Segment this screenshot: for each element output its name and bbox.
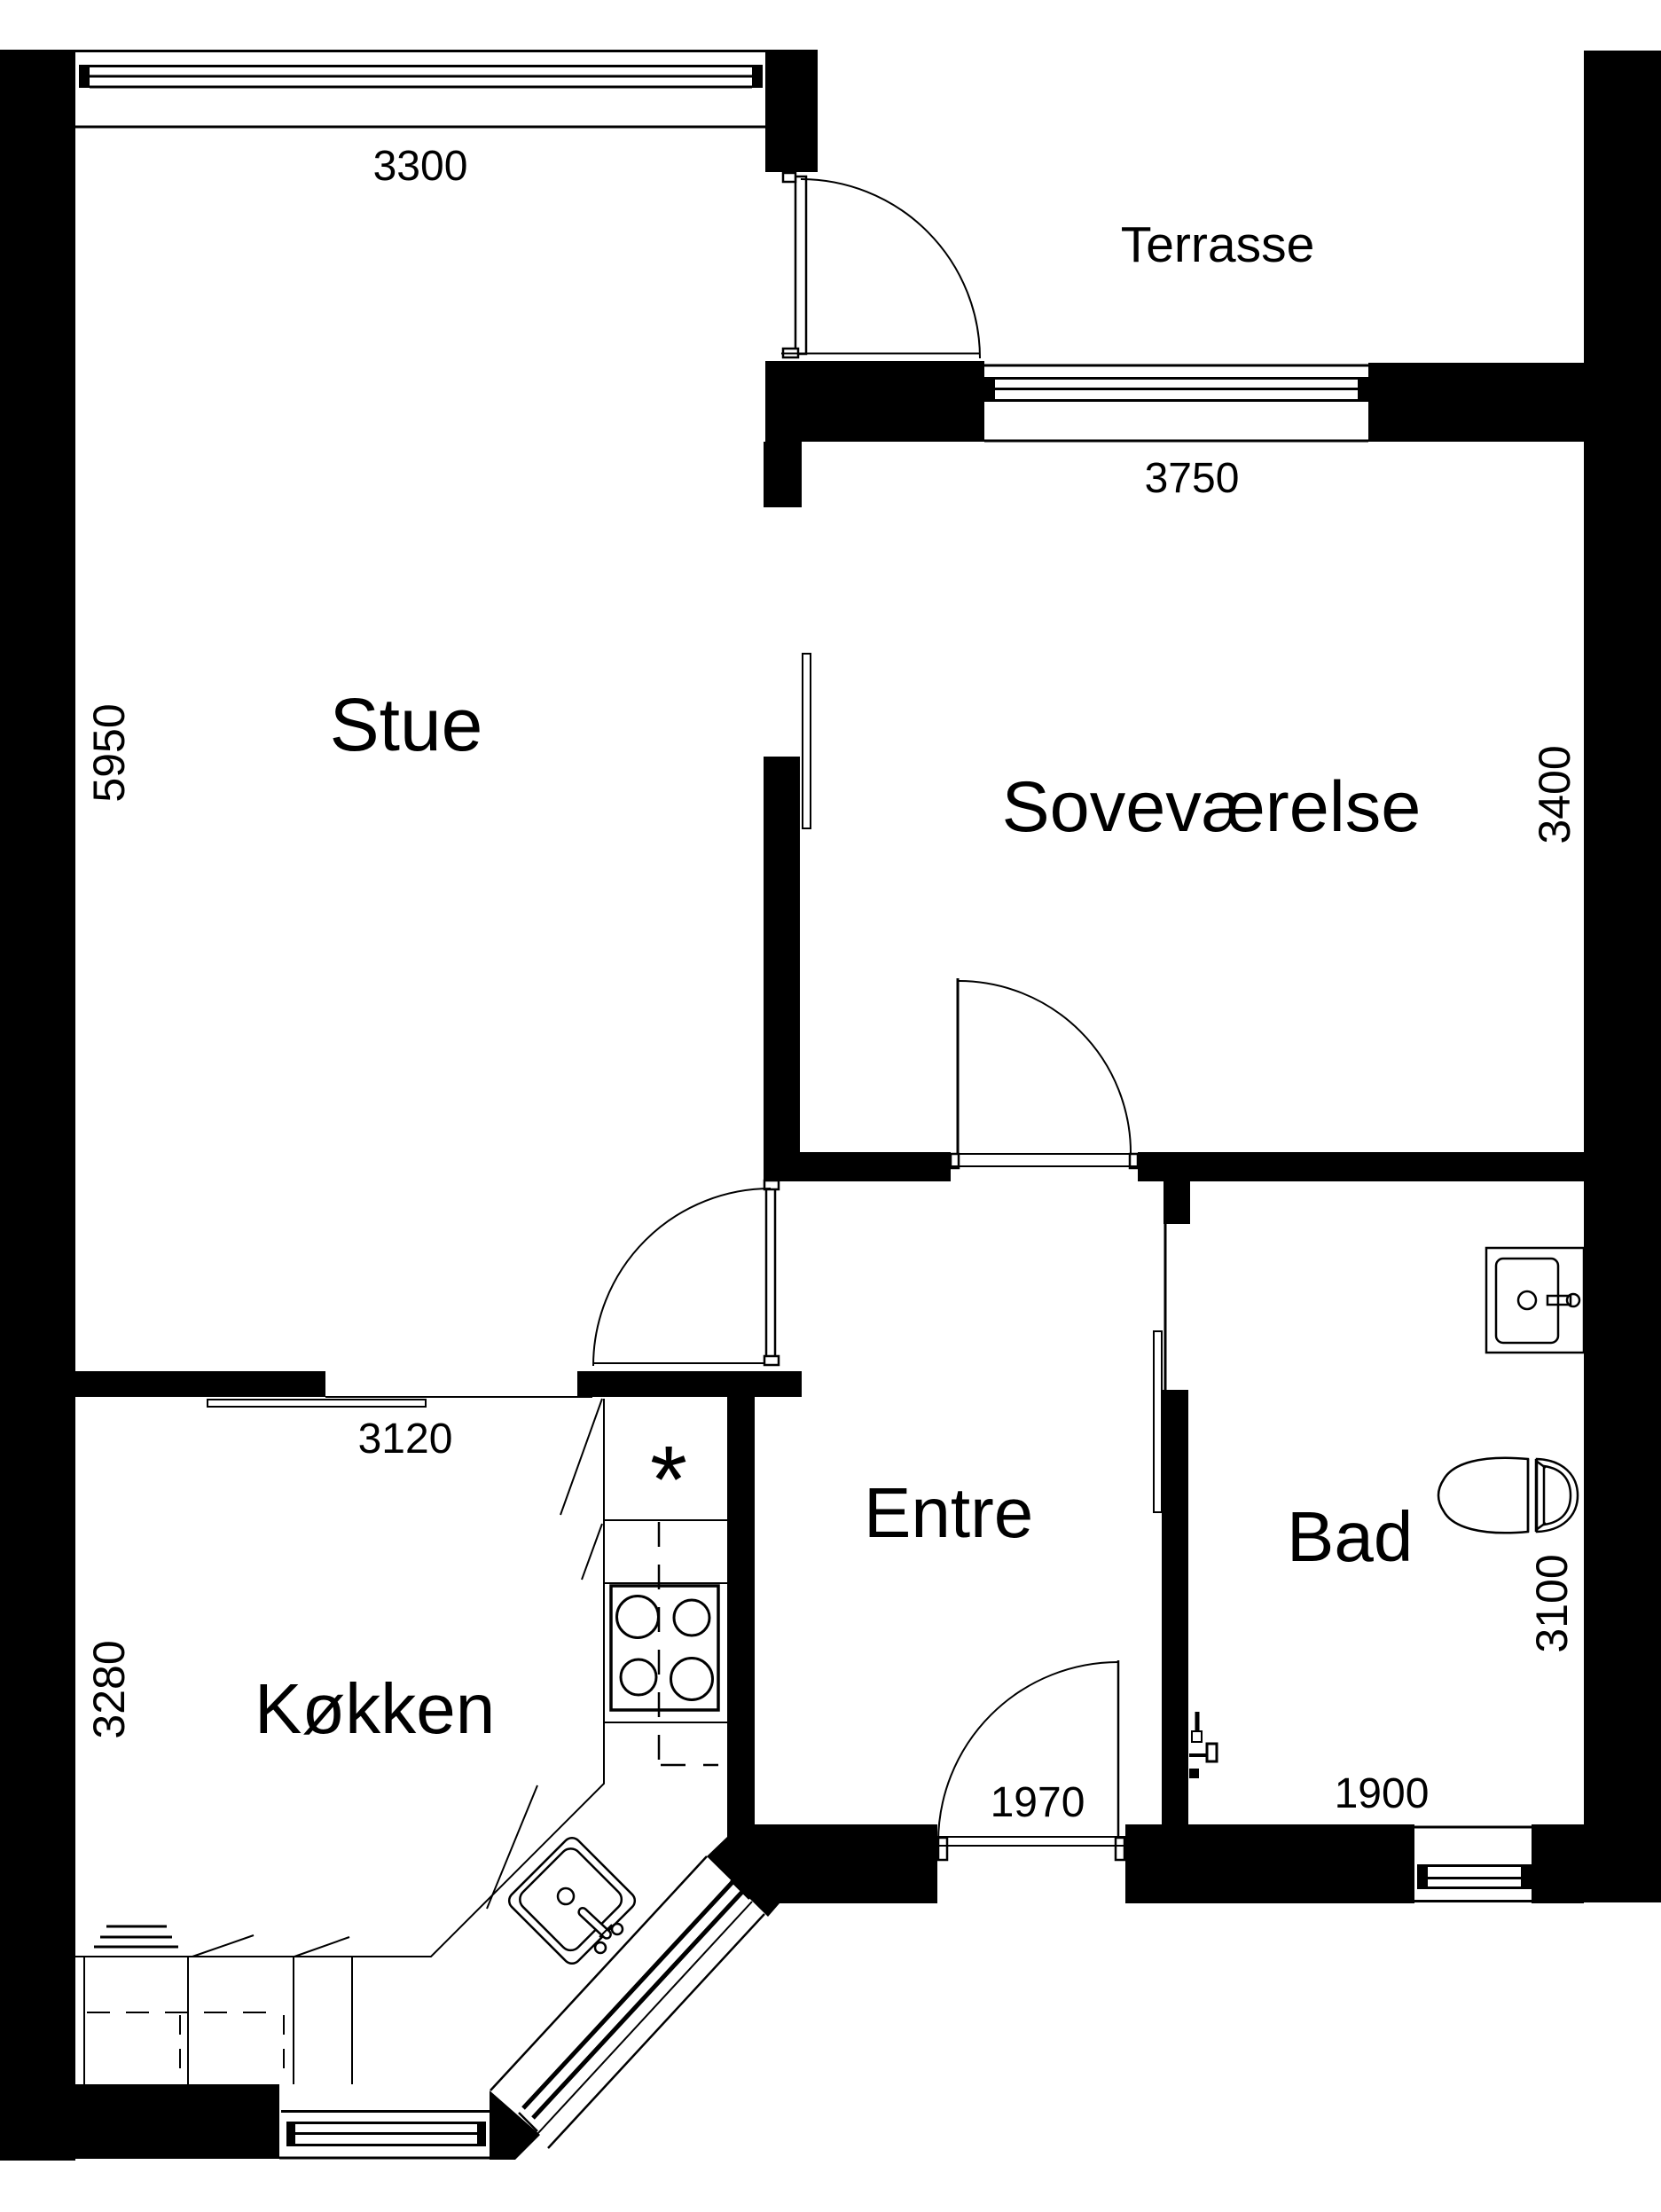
svg-text:*: * — [650, 1425, 687, 1533]
svg-text:Soveværelse: Soveværelse — [1002, 767, 1422, 847]
svg-text:1900: 1900 — [1335, 1770, 1430, 1817]
svg-text:3100: 3100 — [1527, 1554, 1577, 1652]
svg-text:Køkken: Køkken — [255, 1669, 495, 1748]
svg-text:Bad: Bad — [1287, 1497, 1413, 1576]
svg-text:1970: 1970 — [991, 1779, 1085, 1826]
svg-text:3750: 3750 — [1145, 455, 1240, 502]
svg-text:3400: 3400 — [1530, 745, 1579, 843]
svg-text:3300: 3300 — [373, 143, 468, 190]
svg-text:Entre: Entre — [864, 1473, 1033, 1552]
svg-text:Terrasse: Terrasse — [1121, 216, 1315, 273]
svg-text:5950: 5950 — [84, 703, 134, 802]
svg-text:3280: 3280 — [84, 1640, 134, 1738]
svg-text:Stue: Stue — [330, 683, 483, 766]
svg-text:3120: 3120 — [358, 1416, 453, 1463]
